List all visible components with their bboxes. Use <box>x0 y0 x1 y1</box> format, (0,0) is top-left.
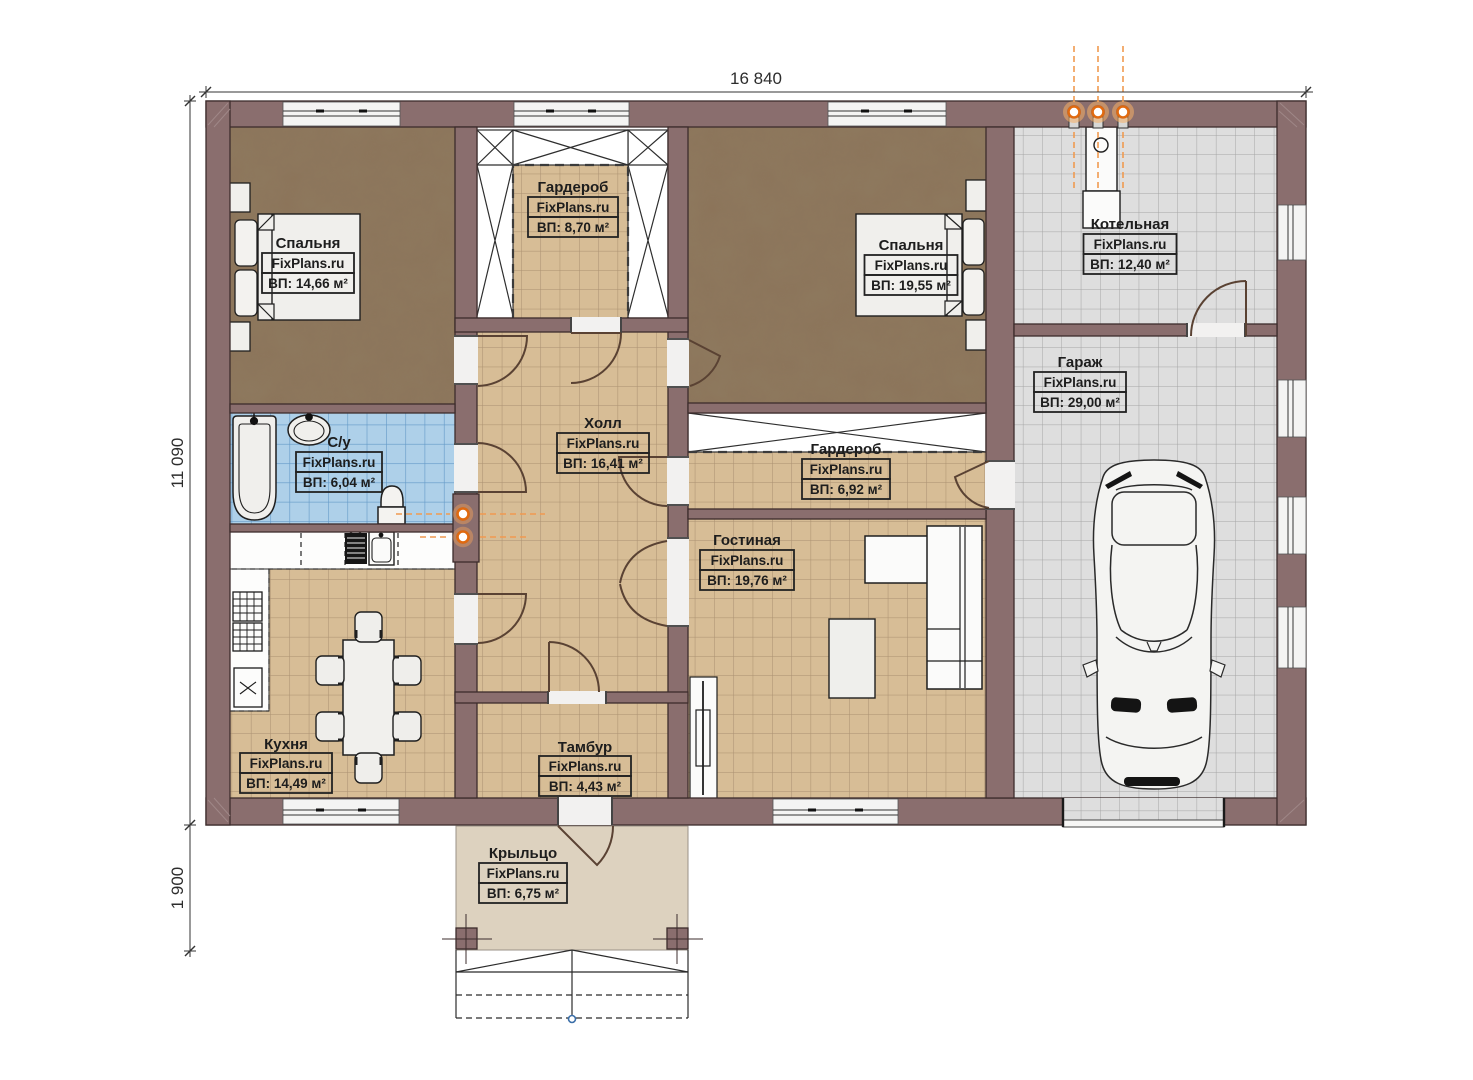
svg-text:Гардероб: Гардероб <box>811 441 882 458</box>
svg-text:ВП: 6,92 м²: ВП: 6,92 м² <box>810 482 883 497</box>
svg-text:FixPlans.ru: FixPlans.ru <box>487 866 560 881</box>
svg-text:ВП: 14,49 м²: ВП: 14,49 м² <box>246 776 326 791</box>
svg-text:ВП: 14,66 м²: ВП: 14,66 м² <box>268 276 348 291</box>
svg-text:FixPlans.ru: FixPlans.ru <box>303 455 376 470</box>
svg-text:ВП: 8,70 м²: ВП: 8,70 м² <box>537 220 610 235</box>
svg-text:FixPlans.ru: FixPlans.ru <box>711 553 784 568</box>
svg-text:Котельная: Котельная <box>1091 216 1170 233</box>
svg-text:ВП: 19,55 м²: ВП: 19,55 м² <box>871 278 951 293</box>
svg-text:ВП: 4,43 м²: ВП: 4,43 м² <box>549 779 622 794</box>
svg-text:11 090: 11 090 <box>168 438 187 489</box>
svg-text:Кухня: Кухня <box>264 736 308 753</box>
svg-text:FixPlans.ru: FixPlans.ru <box>250 756 323 771</box>
svg-text:ВП: 6,04 м²: ВП: 6,04 м² <box>303 475 376 490</box>
svg-text:Спальня: Спальня <box>879 237 944 254</box>
svg-text:FixPlans.ru: FixPlans.ru <box>1044 375 1117 390</box>
svg-text:Гардероб: Гардероб <box>538 179 609 196</box>
svg-text:Спальня: Спальня <box>276 235 341 252</box>
svg-text:FixPlans.ru: FixPlans.ru <box>1094 237 1167 252</box>
svg-text:ВП: 6,75 м²: ВП: 6,75 м² <box>487 886 560 901</box>
svg-text:1 900: 1 900 <box>168 867 187 910</box>
svg-text:FixPlans.ru: FixPlans.ru <box>272 256 345 271</box>
svg-text:Тамбур: Тамбур <box>558 739 612 756</box>
svg-text:FixPlans.ru: FixPlans.ru <box>810 462 883 477</box>
svg-text:FixPlans.ru: FixPlans.ru <box>537 200 610 215</box>
svg-text:ВП: 12,40 м²: ВП: 12,40 м² <box>1090 257 1170 272</box>
svg-text:FixPlans.ru: FixPlans.ru <box>875 258 948 273</box>
svg-text:Холл: Холл <box>584 415 622 432</box>
svg-text:ВП: 19,76 м²: ВП: 19,76 м² <box>707 573 787 588</box>
svg-text:Гостиная: Гостиная <box>713 532 781 549</box>
svg-text:FixPlans.ru: FixPlans.ru <box>567 436 640 451</box>
svg-text:16 840: 16 840 <box>730 69 782 88</box>
svg-text:С/у: С/у <box>327 434 351 451</box>
svg-text:ВП: 16,41 м²: ВП: 16,41 м² <box>563 456 643 471</box>
svg-text:Крыльцо: Крыльцо <box>489 845 557 862</box>
svg-text:ВП: 29,00 м²: ВП: 29,00 м² <box>1040 395 1120 410</box>
svg-text:Гараж: Гараж <box>1058 354 1103 371</box>
svg-text:FixPlans.ru: FixPlans.ru <box>549 759 622 774</box>
